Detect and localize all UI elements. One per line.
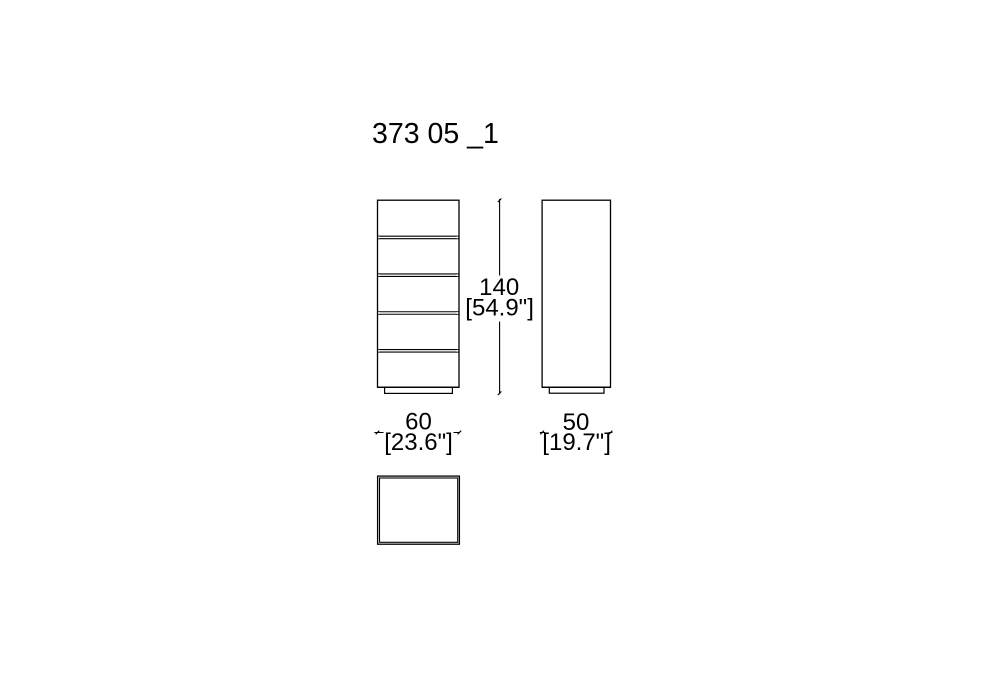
svg-text:[54.9"]: [54.9"] bbox=[465, 294, 534, 321]
svg-text:[19.7"]: [19.7"] bbox=[542, 429, 611, 456]
svg-text:373 05 _1: 373 05 _1 bbox=[372, 118, 499, 150]
svg-text:[23.6"]: [23.6"] bbox=[384, 429, 453, 456]
